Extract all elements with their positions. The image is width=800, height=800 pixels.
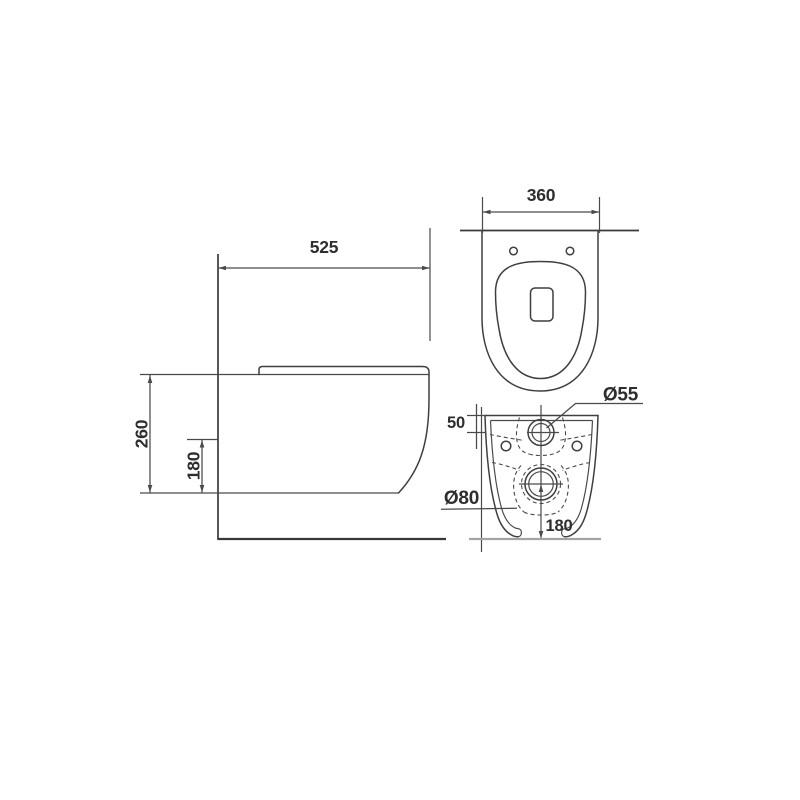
drawing-canvas: 525 260 180 360 [0, 0, 800, 800]
top-seat-opening [496, 262, 586, 379]
dim-label-side-height: 260 [132, 419, 152, 448]
rear-wing-dashed [563, 463, 591, 471]
dim-label-side-fixing-height: 180 [184, 451, 204, 480]
dim-label-rear-outlet-diameter: Ø80 [444, 488, 479, 509]
side-view: 525 260 180 [132, 228, 447, 540]
dim-arrow [219, 266, 227, 271]
dim-arrow [483, 210, 491, 215]
rear-wing-dashed [492, 463, 520, 471]
rear-inlet-housing-dashed [553, 418, 566, 455]
dim-label-rear-inlet-diameter: Ø55 [603, 385, 639, 406]
dim-arrow [148, 376, 153, 384]
rear-inlet-housing-dashed [516, 418, 529, 455]
dim-arrow [539, 531, 544, 539]
top-view: 360 [460, 185, 639, 391]
dim-arrow [592, 210, 600, 215]
rear-shell-left-foot-cap [518, 529, 521, 537]
top-pan-outline [482, 231, 598, 392]
top-flush-window [531, 288, 554, 321]
dim-label-side-depth: 525 [310, 237, 339, 257]
rear-outlet-housing-dashed [514, 466, 524, 513]
rear-fixing-hole-left [501, 441, 511, 451]
dim-arrow [200, 440, 205, 448]
rear-view: 50 Ø55 Ø80 180 [441, 385, 643, 553]
dim-label-top-width: 360 [527, 185, 556, 205]
dim-label-rear-outlet-height: 180 [546, 517, 573, 535]
dim-arrow [422, 266, 430, 271]
side-bowl-front-curve [399, 375, 430, 494]
dim-arrow [539, 485, 544, 493]
rear-shell-left-outer [485, 416, 518, 537]
top-hinge-hole-left [510, 247, 518, 255]
side-seat-lid [259, 367, 429, 375]
top-hinge-hole-right [566, 247, 574, 255]
rear-wing-dashed [490, 435, 524, 441]
rear-shell-right-inner [565, 421, 593, 529]
dim-arrow [148, 485, 153, 493]
rear-wing-dashed [558, 435, 592, 441]
dim-label-rear-inlet-offset: 50 [447, 414, 465, 432]
technical-drawing: 525 260 180 360 [0, 0, 800, 800]
dim-arrow [200, 485, 205, 493]
rear-fixing-hole-right [572, 441, 582, 451]
rear-outlet-housing-dashed [558, 466, 568, 513]
